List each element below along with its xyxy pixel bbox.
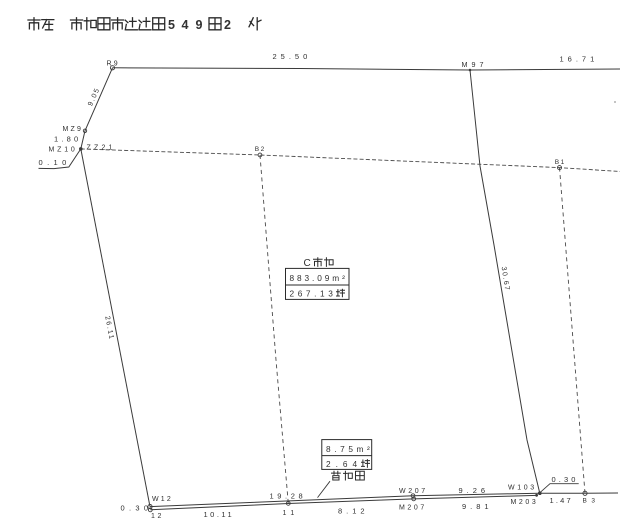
svg-text:9.81: 9.81: [462, 502, 493, 511]
svg-text:9.26: 9.26: [459, 486, 490, 495]
svg-text:25.50: 25.50: [273, 52, 312, 61]
svg-text:19.28: 19.28: [270, 491, 307, 500]
svg-text:MZ10: MZ10: [49, 146, 78, 153]
svg-text:8.75m²: 8.75m²: [326, 444, 373, 454]
svg-text:8.12: 8.12: [338, 506, 369, 515]
svg-text:9: 9: [196, 18, 203, 32]
svg-text:11: 11: [283, 510, 299, 517]
svg-text:1.47: 1.47: [550, 496, 573, 505]
svg-text:B2: B2: [255, 146, 266, 153]
svg-text:2: 2: [224, 18, 231, 32]
svg-text:B1: B1: [555, 159, 566, 166]
svg-text:0.30: 0.30: [552, 475, 579, 484]
svg-text:0.10: 0.10: [39, 158, 71, 167]
svg-text:C: C: [304, 258, 311, 269]
svg-text:4: 4: [182, 18, 189, 32]
svg-text:12: 12: [151, 513, 164, 520]
svg-text:M203: M203: [511, 499, 539, 506]
svg-text:R9: R9: [107, 60, 120, 67]
svg-text:W207: W207: [399, 488, 428, 495]
svg-text:W12: W12: [152, 496, 173, 503]
svg-text:1.80: 1.80: [54, 134, 81, 143]
svg-text:267.13: 267.13: [290, 288, 337, 298]
svg-text:16.71: 16.71: [560, 54, 599, 63]
svg-text:0.30: 0.30: [121, 503, 153, 512]
svg-text:883.09m²: 883.09m²: [290, 273, 348, 283]
svg-text:M207: M207: [399, 504, 427, 511]
svg-text:MZ9: MZ9: [63, 126, 84, 133]
svg-text:10.11: 10.11: [204, 510, 235, 519]
svg-text:5: 5: [168, 18, 175, 32]
svg-text:B3: B3: [583, 498, 600, 505]
svg-text:ZZ21: ZZ21: [87, 144, 116, 151]
svg-text:M97: M97: [462, 60, 488, 69]
svg-text:2.64: 2.64: [326, 459, 362, 469]
svg-text:W103: W103: [508, 485, 537, 492]
